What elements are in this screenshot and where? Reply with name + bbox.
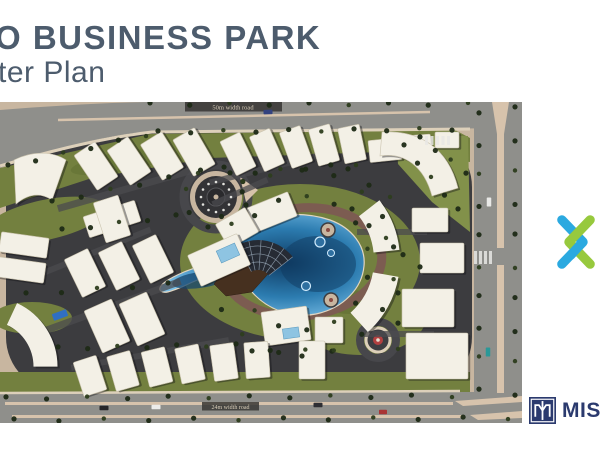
masterplan-image: 50m width road 24m width road bbox=[0, 102, 522, 423]
road-label-bottom: 24m width road bbox=[212, 405, 250, 411]
brand-xmark-icon bbox=[553, 214, 599, 270]
partner-logo: MISR bbox=[529, 397, 600, 424]
partner-logo-text: MISR bbox=[562, 397, 600, 424]
partner-logo-monogram-icon bbox=[529, 397, 556, 424]
slide-title-line2: ter Plan bbox=[0, 56, 105, 90]
slide-title-line1: O BUSINESS PARK bbox=[0, 19, 321, 57]
road-label-top: 50m width road bbox=[212, 105, 254, 112]
masterplan-render-layer bbox=[0, 102, 522, 423]
slide: O BUSINESS PARK ter Plan 50m width road … bbox=[0, 0, 600, 450]
